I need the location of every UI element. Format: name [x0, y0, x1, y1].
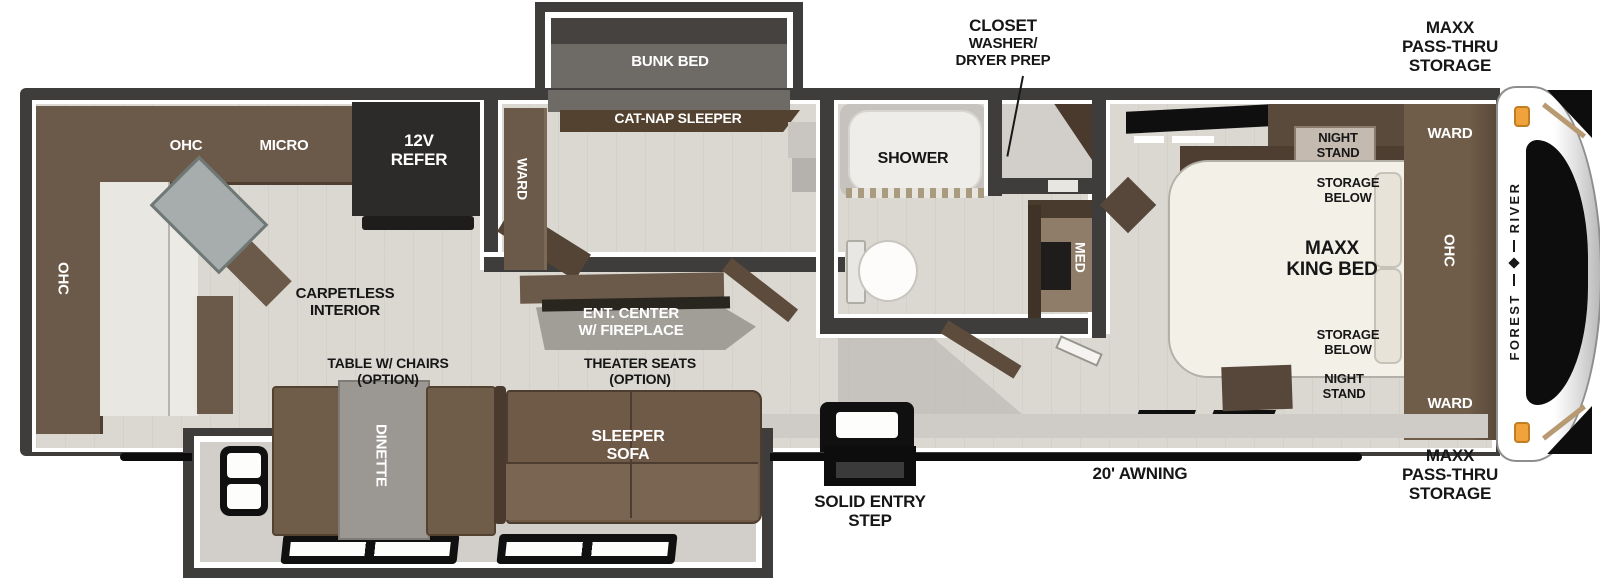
- slide-bottom-window2: [496, 534, 677, 564]
- dinette-bench-left: [272, 386, 342, 536]
- vanity-frame: [1028, 205, 1041, 318]
- table-option-label: TABLE W/ CHAIRS (OPTION): [318, 356, 458, 387]
- window-glass: [227, 453, 261, 478]
- kitchen-counter: [100, 182, 170, 416]
- closet-callout-title: CLOSET: [943, 16, 1063, 35]
- theater-option-label: THEATER SEATS (OPTION): [570, 356, 710, 387]
- ward-bottom-label: WARD: [1410, 396, 1490, 413]
- brand-text: FOREST RIVER: [1501, 151, 1527, 391]
- storage-top-label: STORAGE BELOW: [1308, 176, 1388, 205]
- sleeper-sofa-label: SLEEPER SOFA: [568, 428, 688, 463]
- med-label: MED: [1072, 242, 1087, 273]
- entry-step-label: SOLID ENTRY STEP: [800, 492, 940, 530]
- shower-label: SHOWER: [853, 150, 973, 168]
- nightstand-bottom: [1221, 365, 1292, 411]
- entry-step-tread: [836, 462, 904, 478]
- bath-left-wall: [820, 100, 834, 338]
- entry-step: [824, 446, 916, 486]
- marker-light-bottom: [1514, 422, 1530, 443]
- king-bed-label: MAXX KING BED: [1262, 238, 1402, 281]
- entry-door-window: [836, 412, 898, 438]
- bath-right-wall: [1092, 100, 1106, 338]
- ent-center-label: ENT. CENTER W/ FIREPLACE: [556, 306, 706, 339]
- ohc-side-label: OHC: [54, 262, 71, 295]
- slide-side-window: [220, 446, 268, 516]
- passthru-bottom-label: MAXX PASS-THRU STORAGE: [1385, 446, 1515, 503]
- vanity-sink: [1041, 242, 1071, 290]
- brand-word-forest: FOREST: [1507, 293, 1522, 360]
- window-glass: [289, 542, 450, 556]
- dinette-bench-right: [426, 386, 496, 536]
- awning-label: 20' AWNING: [1065, 464, 1215, 483]
- bunkroom-left-wall: [484, 100, 498, 270]
- storage-bottom-label: STORAGE BELOW: [1308, 328, 1388, 357]
- micro-label: MICRO: [248, 138, 320, 155]
- bunk-slide-opening: [548, 90, 790, 112]
- brand-word-river: RIVER: [1507, 182, 1522, 234]
- ohc-top-label: OHC: [156, 138, 216, 155]
- bath-trim-r2: [1106, 100, 1110, 334]
- closet-left-wall: [988, 100, 1002, 196]
- closet-door-opening: [1048, 180, 1078, 192]
- dinette-label: DINETTE: [372, 424, 389, 487]
- bath-trim-l2: [834, 100, 838, 318]
- sofa-seat: [506, 462, 758, 520]
- front-wardrobe-column: [1404, 104, 1496, 440]
- brand-dash1: [1513, 274, 1515, 286]
- closet-callout-line2: WASHER/: [943, 36, 1063, 53]
- nightstand-bottom-label: NIGHT STAND: [1306, 372, 1382, 401]
- refrigerator-base: [362, 216, 474, 230]
- bunkroom-wall-trim2: [498, 100, 502, 270]
- bedroom-shelf1: [1134, 136, 1164, 143]
- bedroom-ohc-label: OHC: [1440, 234, 1457, 267]
- bunk-ward-label: WARD: [514, 158, 529, 200]
- brand-logo-icon: [1508, 258, 1519, 269]
- catnap-label: CAT-NAP SLEEPER: [598, 111, 758, 126]
- window-glass: [227, 484, 261, 509]
- awning-line-left: [120, 453, 192, 461]
- marker-light-top: [1514, 106, 1530, 127]
- bedroom-shelf2: [1172, 136, 1214, 143]
- refer-label: 12V REFER: [382, 132, 456, 169]
- floorplan-diagram: OHC MICRO 12V REFER OHC CARPETLESS INTER…: [0, 0, 1600, 582]
- sofa-armrest-left: [494, 386, 506, 524]
- bunk-headboard: [551, 18, 787, 44]
- entry-door: [820, 402, 914, 452]
- nightstand-top-label: NIGHT STAND: [1300, 131, 1376, 160]
- passthru-top-label: MAXX PASS-THRU STORAGE: [1385, 18, 1515, 75]
- toilet-bowl: [858, 240, 918, 302]
- shower-door: [846, 188, 984, 198]
- bunk-bed-label: BUNK BED: [610, 54, 730, 71]
- closet-bottom-wall: [1002, 178, 1092, 194]
- kitchen-peninsula: [194, 296, 233, 414]
- brand-dash2: [1513, 240, 1515, 252]
- carpetless-label: CARPETLESS INTERIOR: [280, 286, 410, 320]
- window-glass: [505, 542, 668, 556]
- ward-top-label: WARD: [1410, 126, 1490, 143]
- closet-callout-line3: DRYER PREP: [943, 53, 1063, 70]
